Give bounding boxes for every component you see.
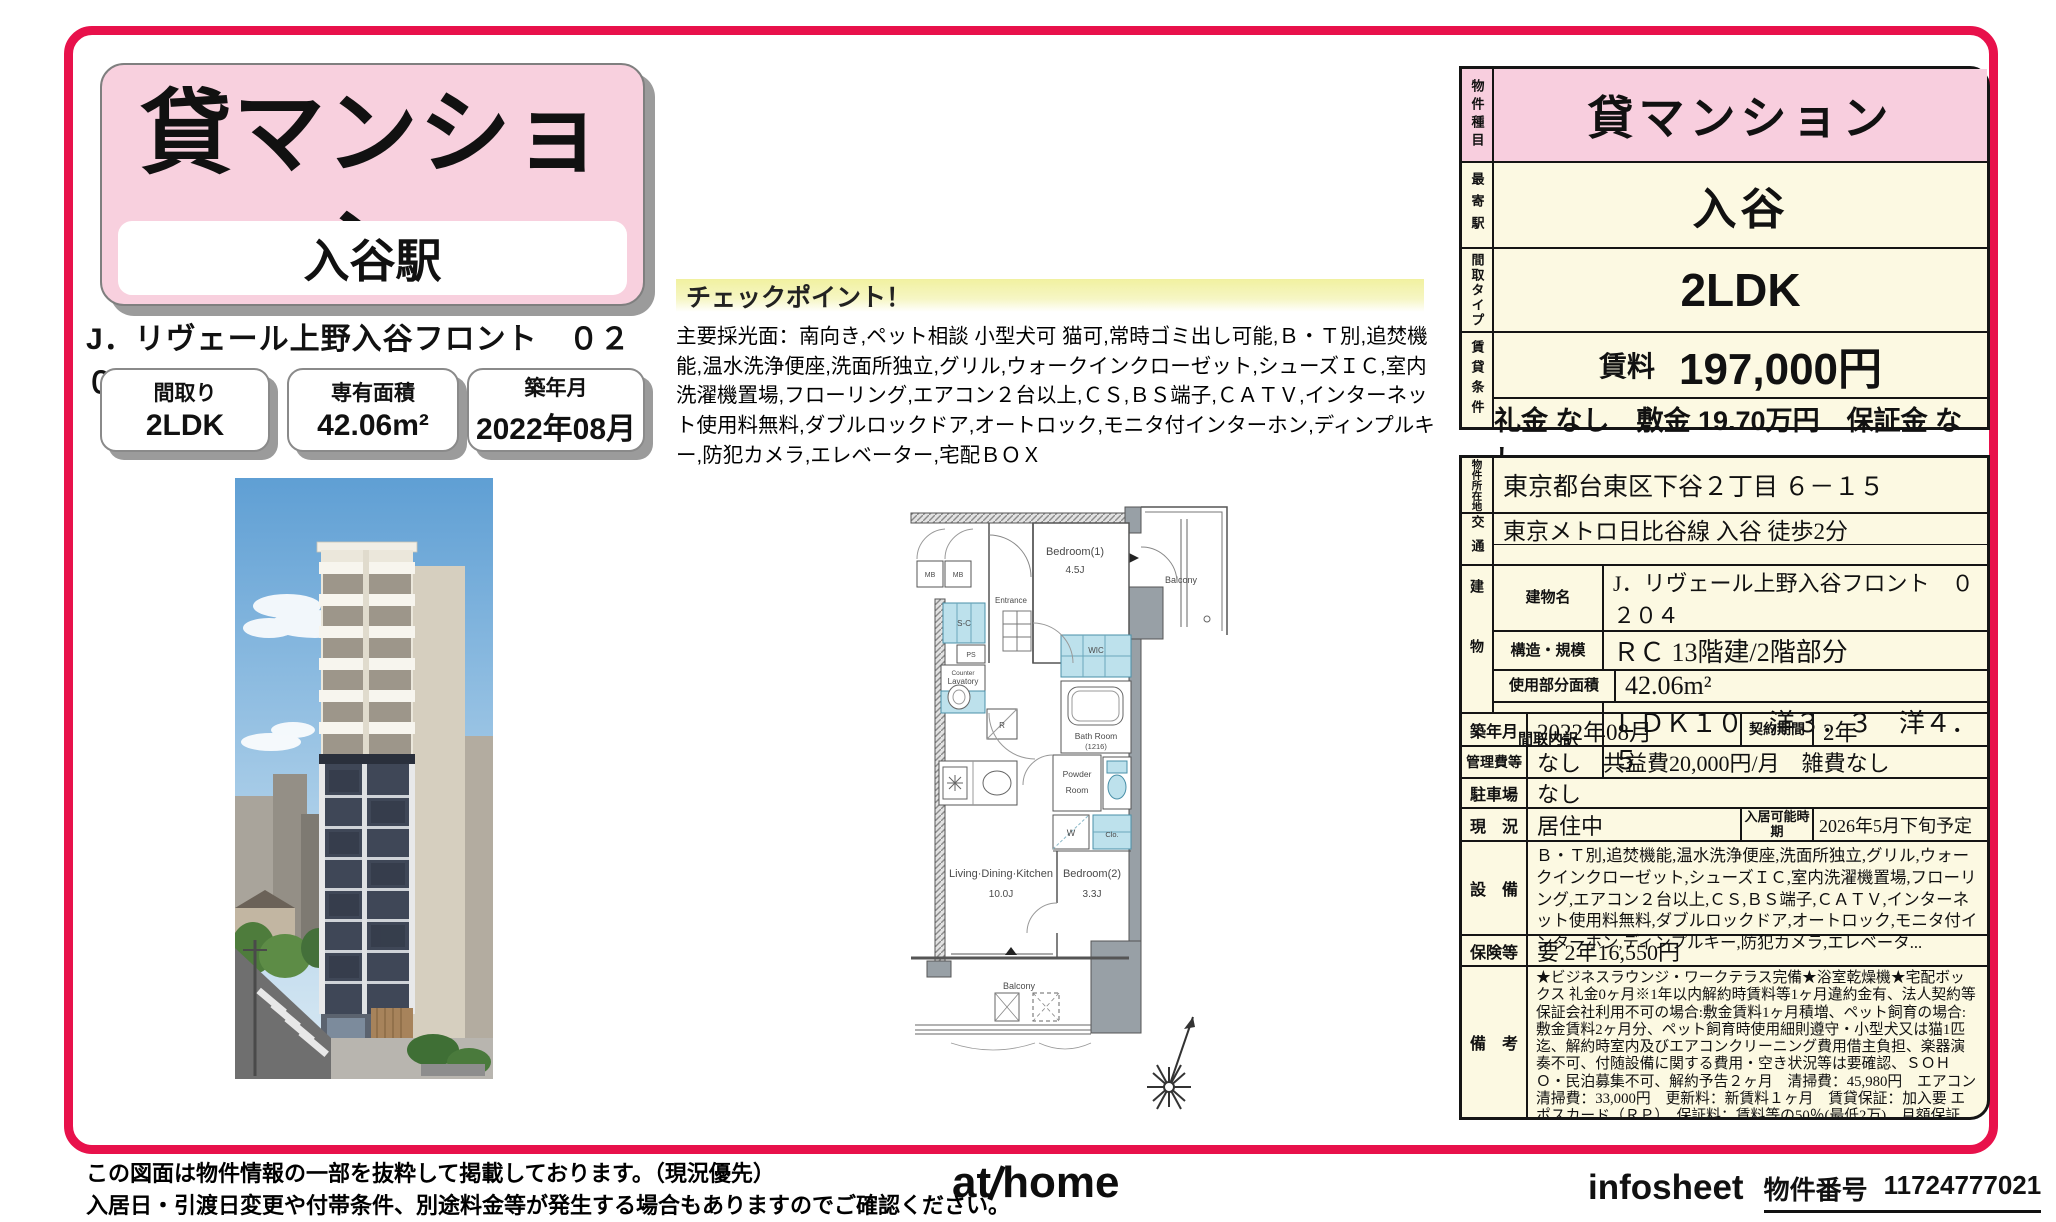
structure-value: ＲＣ 13階建/2階部分: [1604, 632, 1987, 669]
row-label: 最寄駅: [1462, 163, 1494, 247]
balcony-top-label: Balcony: [1165, 575, 1198, 585]
bedroom1-size: 4.5J: [1066, 565, 1085, 576]
built-value: 2022年08月: [1528, 714, 1740, 745]
spec-label: 専有面積: [331, 377, 415, 407]
bathroom: Bath Room (1216): [1061, 681, 1131, 753]
rent-value: 197,000円: [1679, 333, 1882, 397]
ldk: Living·Dining·Kitchen 10.0J: [949, 868, 1053, 900]
spec-box-built: 築年月 2022年08月: [467, 368, 645, 452]
row-label: 現 況: [1462, 809, 1528, 840]
powder-label2: Room: [1066, 785, 1089, 795]
mb-label: MB: [925, 572, 936, 579]
property-number: 物件番号 11724777021: [1764, 1170, 2042, 1213]
disclaimer-line2: 入居日・引渡日変更や付帯条件、別途料金等が発生する場合もありますのでご確認くださ…: [86, 1190, 1010, 1222]
sc-label: S-C: [957, 619, 971, 628]
bedroom2-label: Bedroom(2): [1063, 868, 1121, 880]
row-label: 保険等: [1462, 936, 1528, 965]
spec-value: 2LDK: [146, 409, 224, 443]
insurance-value: 要 2年16,550円: [1528, 936, 1987, 965]
access-line2: [1494, 545, 1987, 564]
contract-label: 契約期間: [1740, 714, 1814, 745]
contract-value: 2年: [1814, 714, 1987, 745]
station-value: 入谷: [1494, 163, 1987, 247]
row-equipment: 設 備 Ｂ・Ｔ別,追焚機能,温水洗浄便座,洗面所独立,グリル,ウォークインクロー…: [1462, 842, 1987, 936]
athome-logo-home: home: [1002, 1158, 1119, 1208]
row-label: 物件種目: [1462, 69, 1494, 161]
row-access: 交通 東京メトロ日比谷線 入谷 徒歩2分: [1462, 514, 1987, 566]
bath-size: (1216): [1085, 742, 1107, 751]
pipe-space: PS: [957, 645, 985, 663]
spec-label: 築年月: [525, 372, 588, 402]
r-label: R: [999, 721, 1005, 730]
lavatory: Counter Lavatory: [941, 665, 985, 713]
row-station: 最寄駅 入谷: [1462, 163, 1987, 249]
clo-label: Clo.: [1105, 830, 1118, 839]
athome-logo-at: at: [952, 1158, 991, 1208]
address-value: 東京都台東区下谷２丁目 ６－１５: [1494, 458, 1987, 512]
rent-caption: 賃料: [1599, 345, 1655, 385]
washer: W: [1053, 815, 1089, 849]
layout-value: 2LDK: [1494, 249, 1987, 331]
row-label: 築年月: [1462, 714, 1528, 745]
status-value: 居住中: [1528, 809, 1740, 840]
row-label: 駐車場: [1462, 779, 1528, 807]
row-label: 間取タイプ: [1462, 249, 1494, 331]
parking-value: なし: [1528, 779, 1987, 807]
building-name-row: 建物名 J．リヴェール上野入谷フロント ０２０４: [1494, 566, 1987, 632]
row-label: 賃貸条件: [1462, 333, 1494, 427]
row-remarks: 備 考 ★ビジネスラウンジ・ワークテラス完備★浴室乾燥機★宅配ボックス 礼金0ヶ…: [1462, 967, 1987, 1117]
bedroom2-size: 3.3J: [1083, 889, 1102, 900]
refrigerator: R: [987, 709, 1017, 739]
used-area-value: 42.06m²: [1616, 671, 1987, 701]
kitchen-counter: [939, 761, 1017, 805]
row-layout: 間取タイプ 2LDK: [1462, 249, 1987, 333]
property-type-badge: 貸マンション 入谷駅: [100, 63, 645, 306]
compass-north-icon: [1147, 1017, 1195, 1109]
floorplan: Balcony Bedroom(1) 4.5J MB MB Entrance: [893, 503, 1245, 1143]
mb-label: MB: [953, 572, 964, 579]
ldk-size: 10.0J: [989, 889, 1013, 900]
access-line1: 東京メトロ日比谷線 入谷 徒歩2分: [1494, 514, 1987, 545]
wic-label: WIC: [1088, 646, 1104, 655]
row-address: 物件所在地 東京都台東区下谷２丁目 ６－１５: [1462, 458, 1987, 514]
row-label: 設 備: [1462, 842, 1528, 934]
counter-label: Counter: [951, 670, 975, 677]
checkpoint-title-band: チェックポイント！: [676, 279, 1424, 312]
row-insurance: 保険等 要 2年16,550円: [1462, 936, 1987, 967]
bedroom1-label: Bedroom(1): [1046, 546, 1104, 558]
row-label: 交通: [1462, 514, 1494, 564]
lavatory-label: Lavatory: [948, 677, 979, 686]
checkpoint-title: チェックポイント！: [686, 278, 911, 314]
structure-row: 構造・規模 ＲＣ 13階建/2階部分: [1494, 632, 1987, 671]
w-label: W: [1067, 828, 1076, 838]
spec-value: 42.06m²: [317, 409, 429, 443]
mgmt-value: なし 共益費20,000円/月 雑費なし: [1528, 747, 1987, 777]
row-label: 管理費等: [1462, 747, 1528, 777]
remarks-value: ★ビジネスラウンジ・ワークテラス完備★浴室乾燥機★宅配ボックス 礼金0ヶ月※1年…: [1528, 967, 1987, 1117]
sub-label: 建物名: [1494, 566, 1604, 630]
main-tower: [317, 542, 465, 1044]
meter-boxes: MB MB: [917, 529, 973, 587]
shoe-closet: S-C: [943, 603, 985, 643]
row-property-type: 物件種目 貸マンション: [1462, 69, 1987, 163]
row-building: 建物 建物名 J．リヴェール上野入谷フロント ０２０４ 構造・規模 ＲＣ 13階…: [1462, 566, 1987, 714]
sub-label: 構造・規模: [1494, 632, 1604, 669]
wic: WIC: [1061, 635, 1131, 677]
movein-value: 2026年5月下旬予定: [1814, 809, 1987, 840]
row-label: 物件所在地: [1462, 458, 1494, 512]
building-photo: [235, 478, 493, 1079]
spec-box-area: 専有面積 42.06m²: [287, 368, 459, 452]
balcony-bottom-label: Balcony: [1003, 981, 1036, 991]
property-number-label: 物件番号: [1764, 1170, 1868, 1207]
powder-room: Powder Room: [1053, 755, 1101, 811]
infosheet-flyer: 貸マンション 入谷駅 J．リヴェール上野入谷フロント ０２０４ 間取り 2LDK…: [0, 0, 2056, 1222]
spec-value: 2022年08月: [476, 404, 636, 448]
ps-label: PS: [966, 652, 976, 659]
balcony-bottom: Balcony: [915, 981, 1091, 1050]
closet: Clo.: [1093, 815, 1131, 849]
entrance-label: Entrance: [995, 596, 1028, 605]
row-built-contract: 築年月 2022年08月 契約期間 2年: [1462, 714, 1987, 747]
summary-table: 物件種目 貸マンション 最寄駅 入谷 間取タイプ 2LDK 賃貸条件 賃料 19…: [1459, 66, 1990, 430]
row-status: 現 況 居住中 入居可能時期 2026年5月下旬予定: [1462, 809, 1987, 842]
spec-box-layout: 間取り 2LDK: [100, 368, 270, 452]
movein-label: 入居可能時期: [1740, 809, 1814, 840]
footer-disclaimer: この図面は物件情報の一部を抜粋して掲載しております。（現況優先） 入居日・引渡日…: [86, 1158, 1010, 1222]
row-rent-terms: 賃貸条件 賃料 197,000円 礼金 なし 敷金 19.70万円 保証金 なし: [1462, 333, 1987, 427]
spec-label: 間取り: [154, 377, 217, 407]
row-label: 建物: [1462, 566, 1494, 712]
athome-logo: at home: [952, 1158, 1119, 1208]
used-area-row: 使用部分面積 42.06m²: [1494, 671, 1987, 703]
toilet: [1103, 757, 1131, 809]
powder-label1: Powder: [1063, 769, 1092, 779]
entrance: Entrance: [989, 523, 1033, 663]
building-name: J．リヴェール上野入谷フロント ０２０４: [1604, 566, 1987, 630]
checkpoint-body: 主要採光面：南向き,ペット相談 小型犬可 猫可,常時ゴミ出し可能,Ｂ・Ｔ別,追焚…: [676, 322, 1446, 471]
sub-label: 使用部分面積: [1494, 671, 1616, 701]
station-badge: 入谷駅: [118, 221, 627, 295]
ldk-label: Living·Dining·Kitchen: [949, 868, 1053, 880]
equipment-value: Ｂ・Ｔ別,追焚機能,温水洗浄便座,洗面所独立,グリル,ウォークインクローゼット,…: [1528, 842, 1987, 934]
detail-table: 物件所在地 東京都台東区下谷２丁目 ６－１５ 交通 東京メトロ日比谷線 入谷 徒…: [1459, 455, 1990, 1120]
property-type-value: 貸マンション: [1494, 69, 1987, 161]
row-label: 備 考: [1462, 967, 1528, 1117]
row-mgmt-fee: 管理費等 なし 共益費20,000円/月 雑費なし: [1462, 747, 1987, 779]
infosheet-block: infosheet 物件番号 11724777021: [1588, 1168, 2041, 1213]
bath-label: Bath Room: [1075, 731, 1118, 741]
row-parking: 駐車場 なし: [1462, 779, 1987, 809]
property-number-value: 11724777021: [1884, 1170, 2042, 1207]
infosheet-brand: infosheet: [1588, 1168, 1744, 1208]
disclaimer-line1: この図面は物件情報の一部を抜粋して掲載しております。（現況優先）: [86, 1158, 1010, 1190]
